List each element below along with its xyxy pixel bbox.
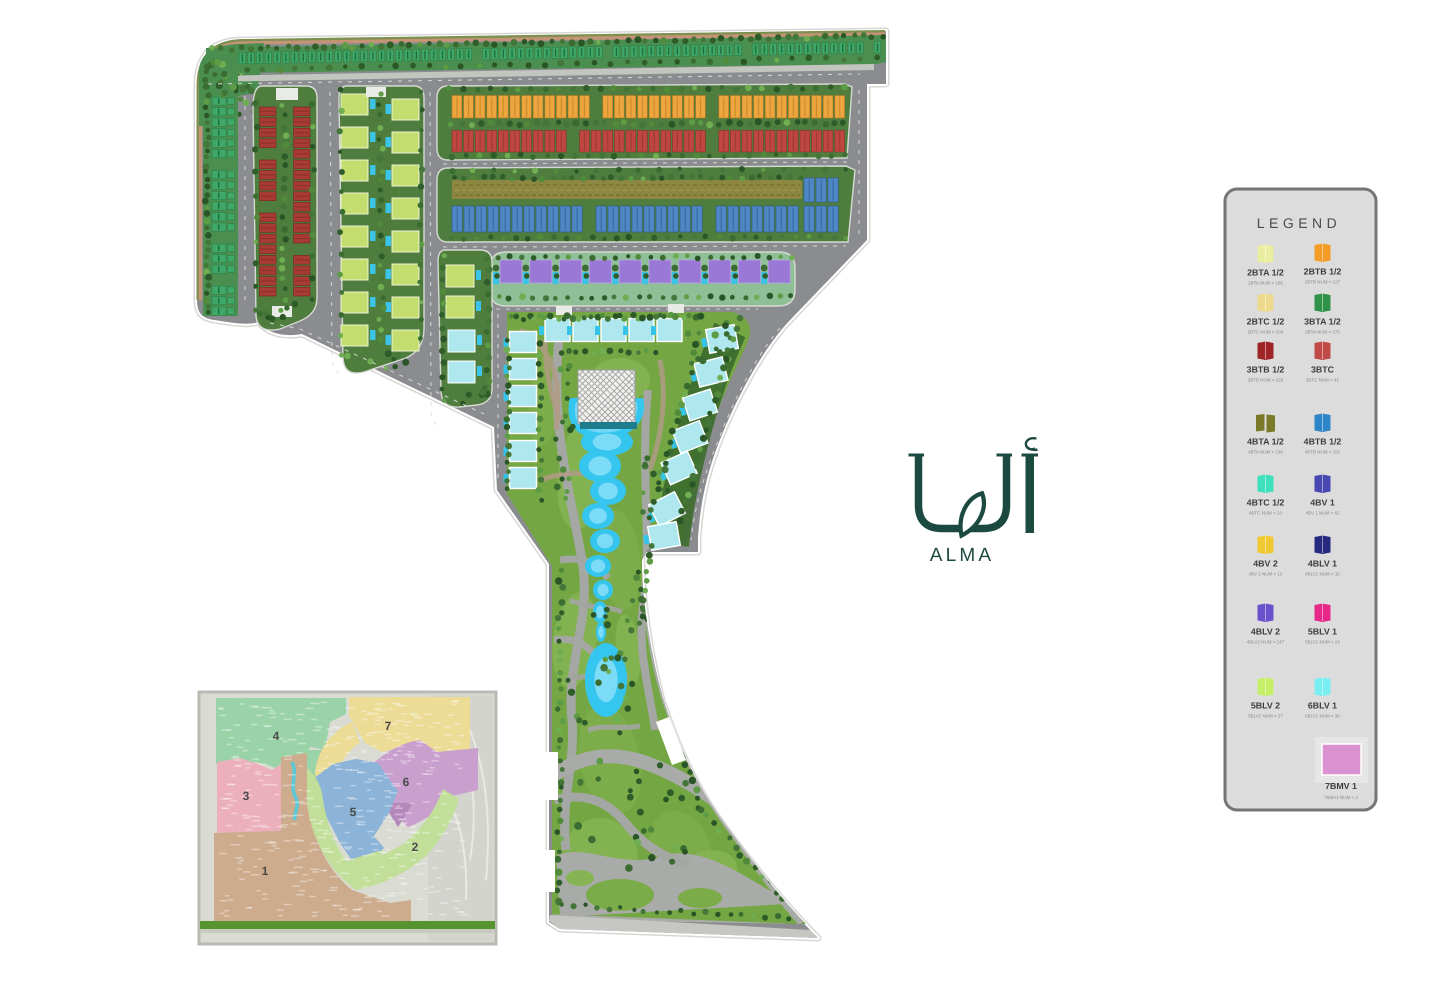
svg-text:4BV 2 NUM = 10: 4BV 2 NUM = 10: [1249, 572, 1283, 577]
svg-text:4BTC 1/2: 4BTC 1/2: [1247, 498, 1285, 508]
svg-text:5BLV1 NUM = 24: 5BLV1 NUM = 24: [1305, 640, 1340, 645]
svg-text:4BTA 1/2: 4BTA 1/2: [1247, 437, 1284, 447]
svg-text:4BV 2: 4BV 2: [1253, 559, 1278, 569]
svg-text:6BLV 1: 6BLV 1: [1308, 701, 1337, 711]
svg-text:4BLV 1: 4BLV 1: [1308, 559, 1337, 569]
svg-text:5BLV 1: 5BLV 1: [1308, 627, 1337, 637]
svg-text:7BMV 1: 7BMV 1: [1325, 781, 1357, 791]
svg-text:5: 5: [350, 805, 357, 819]
svg-text:1: 1: [262, 864, 269, 878]
svg-text:6: 6: [403, 775, 410, 789]
svg-text:3BTA 1/2: 3BTA 1/2: [1304, 317, 1341, 327]
svg-text:4BV 1 NUM = 42: 4BV 1 NUM = 42: [1306, 511, 1340, 516]
svg-text:6BLV1 NUM = 30: 6BLV1 NUM = 30: [1305, 714, 1340, 719]
svg-text:5BLV2 NUM = 27: 5BLV2 NUM = 27: [1248, 714, 1283, 719]
svg-text:3BTC NUM = 41: 3BTC NUM = 41: [1306, 378, 1340, 383]
svg-text:4BV 1: 4BV 1: [1310, 498, 1335, 508]
svg-text:2BTB 1/2: 2BTB 1/2: [1304, 267, 1342, 277]
svg-text:4BTB 1/2: 4BTB 1/2: [1304, 437, 1342, 447]
svg-text:3BTB NUM = 225: 3BTB NUM = 225: [1248, 378, 1284, 383]
svg-text:4BTB NUM = 181: 4BTB NUM = 181: [1305, 450, 1341, 455]
svg-text:ALMA: ALMA: [930, 545, 995, 566]
svg-text:2BTA 1/2: 2BTA 1/2: [1247, 268, 1284, 278]
svg-text:2BTB NUM = 127: 2BTB NUM = 127: [1305, 280, 1341, 285]
svg-text:2BTC NUM = 104: 2BTC NUM = 104: [1248, 330, 1284, 335]
svg-text:3: 3: [243, 789, 250, 803]
svg-text:7BMV1 NUM = 4: 7BMV1 NUM = 4: [1324, 795, 1358, 800]
svg-text:4BTA NUM = 196: 4BTA NUM = 196: [1248, 450, 1283, 455]
svg-text:2BTC 1/2: 2BTC 1/2: [1247, 317, 1285, 327]
svg-text:3BTA NUM = 276: 3BTA NUM = 276: [1305, 330, 1340, 335]
svg-text:4BLV 2: 4BLV 2: [1251, 627, 1280, 637]
svg-text:3BTC: 3BTC: [1311, 365, 1335, 375]
svg-text:7: 7: [385, 719, 392, 733]
svg-text:2: 2: [412, 840, 419, 854]
svg-text:5BLV 2: 5BLV 2: [1251, 701, 1280, 711]
svg-text:4BLV2 NUM = 147: 4BLV2 NUM = 147: [1247, 640, 1285, 645]
svg-text:2BTA NUM = 156: 2BTA NUM = 156: [1248, 281, 1283, 286]
svg-text:4BLV1 NUM = 10: 4BLV1 NUM = 10: [1305, 572, 1340, 577]
svg-text:4: 4: [273, 729, 280, 743]
svg-text:3BTB 1/2: 3BTB 1/2: [1247, 365, 1285, 375]
svg-text:LEGEND: LEGEND: [1257, 215, 1342, 231]
svg-text:4BTC NUM = 33: 4BTC NUM = 33: [1249, 511, 1283, 516]
